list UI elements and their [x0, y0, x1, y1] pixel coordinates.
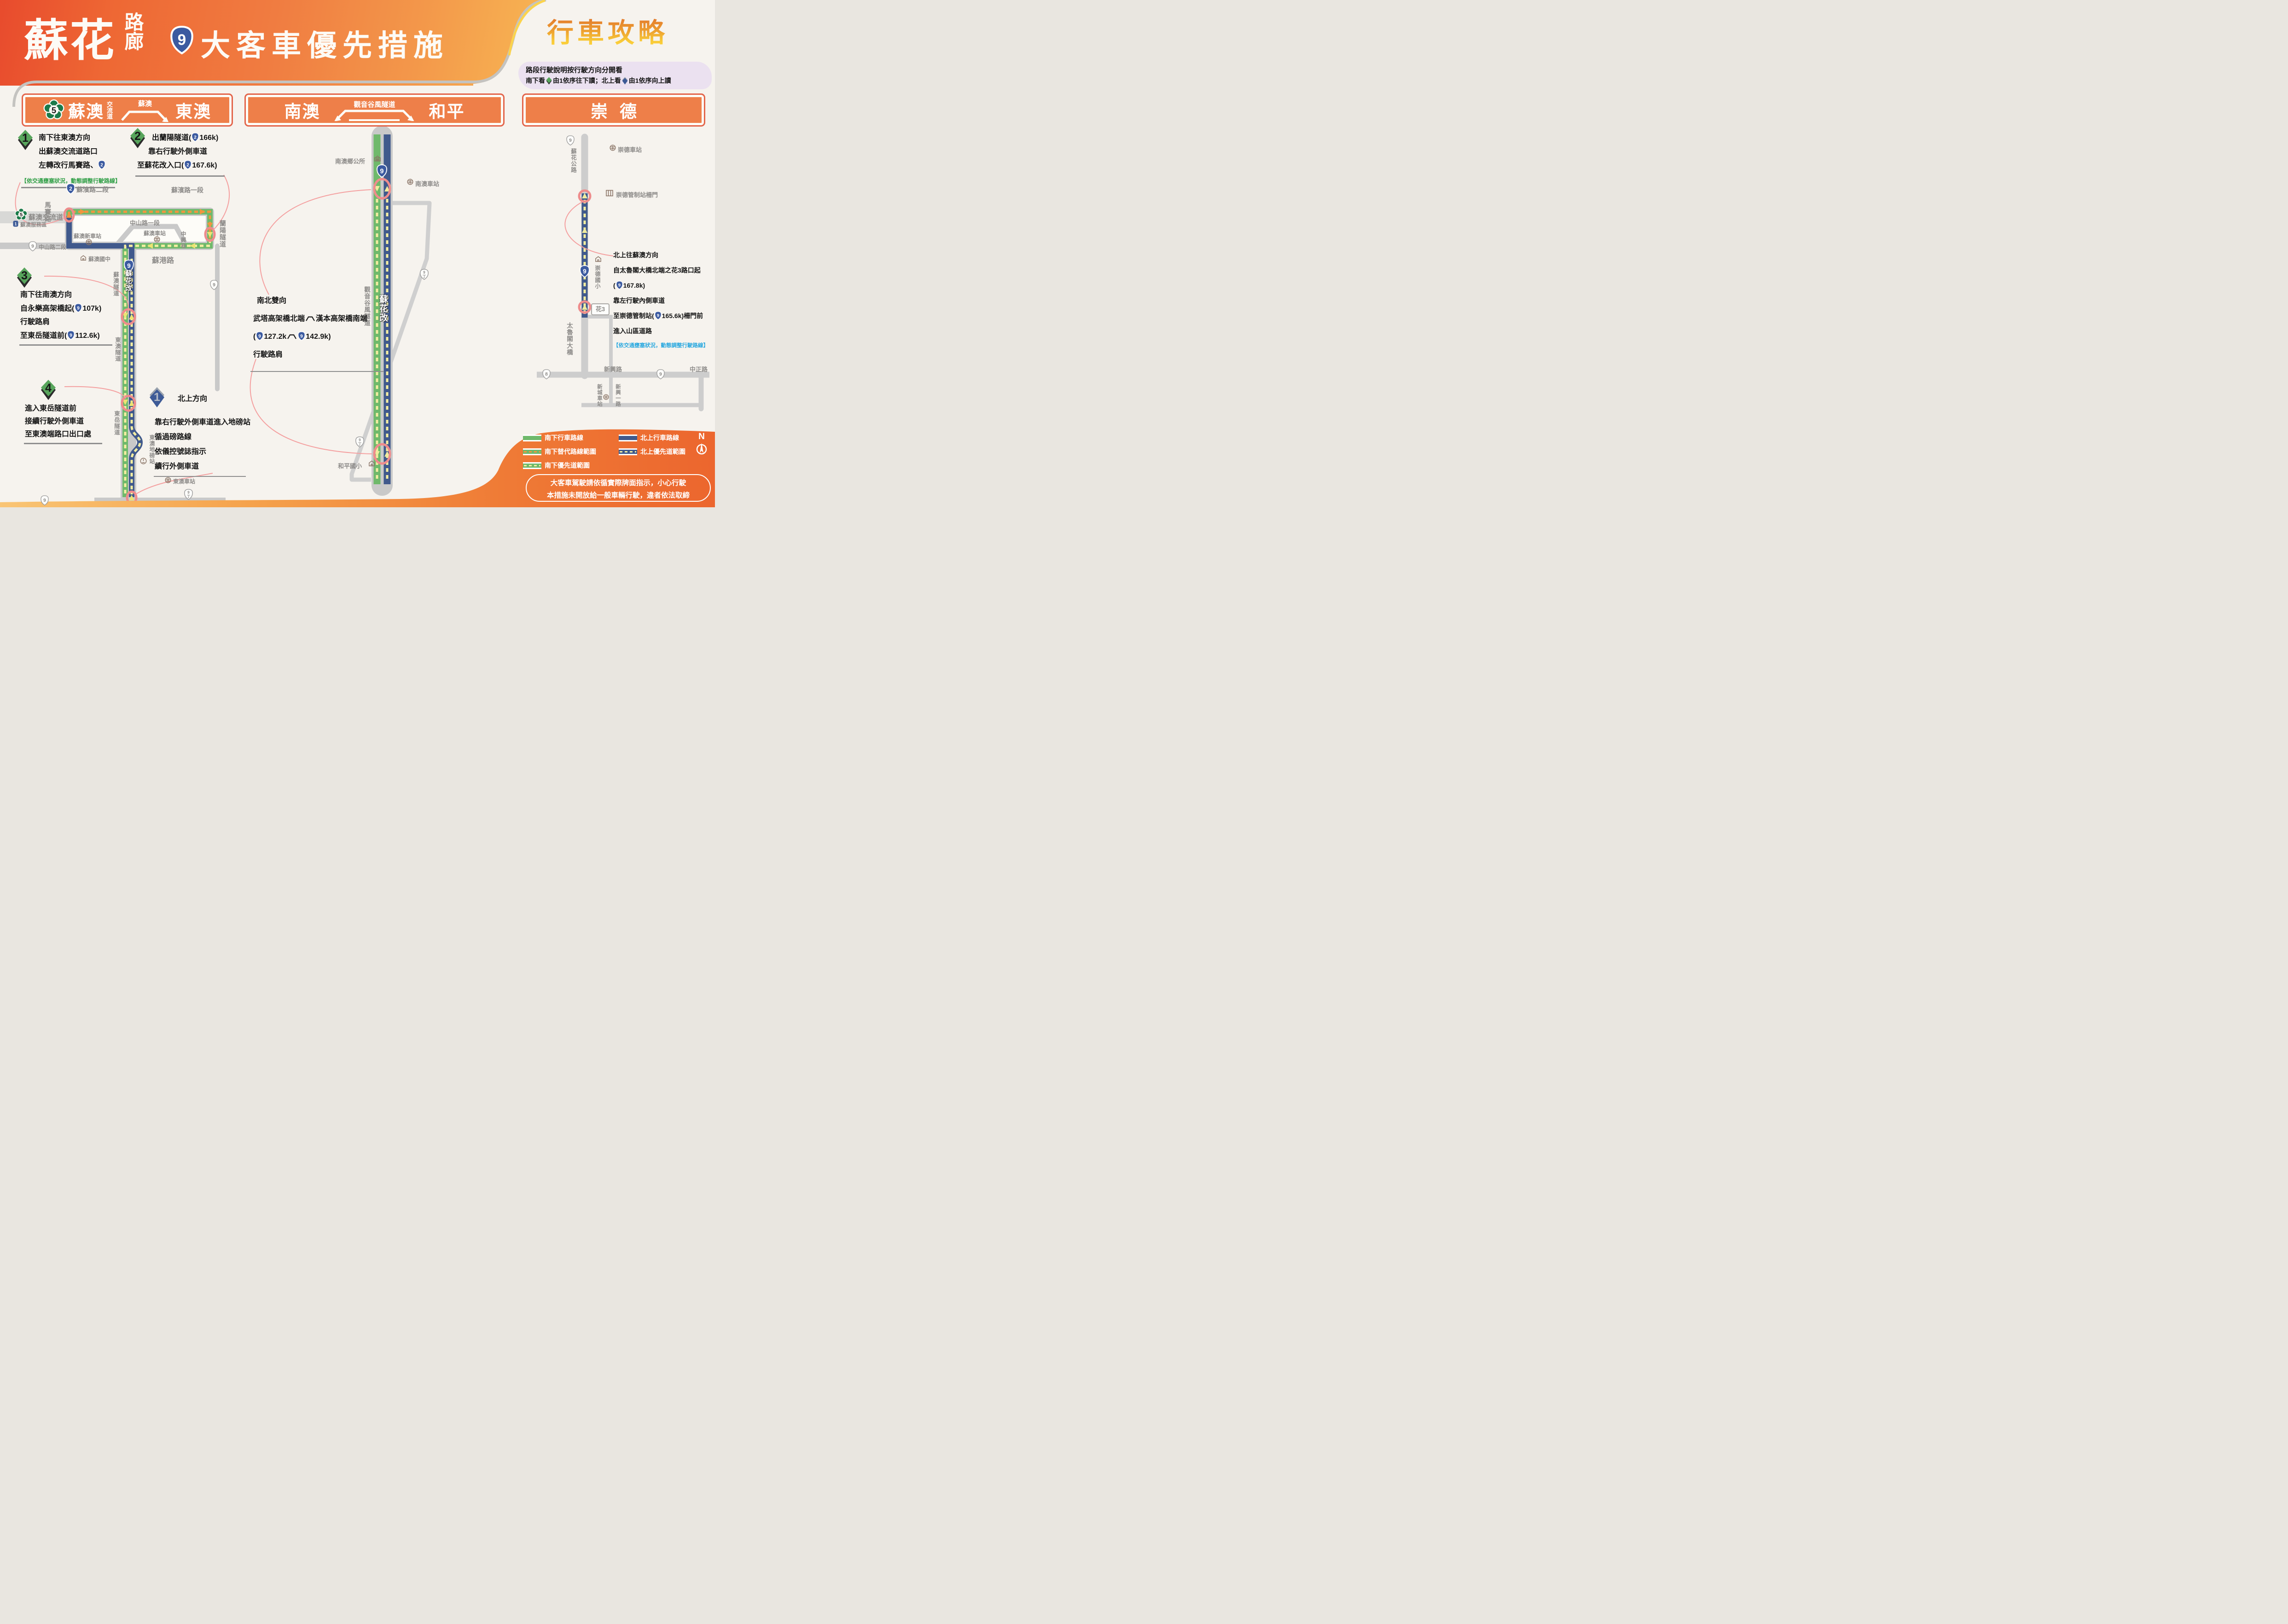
p2-line: 南北雙向 — [257, 292, 367, 310]
tunnel-glyph — [287, 333, 296, 339]
service-label: 蘇澳服務區 — [20, 221, 47, 228]
svg-text:9: 9 — [300, 334, 303, 339]
hua3-label: 花3 — [591, 303, 610, 315]
p3-line: 至崇德管制站(9165.6k)柵門前 — [613, 308, 703, 324]
route-2-shield-icon: 2 — [184, 160, 192, 169]
swatch-south-priority — [523, 462, 541, 469]
plate1-name2: 交流道 — [106, 101, 113, 119]
tunnel-label: 東澳隧道 — [113, 337, 122, 362]
gate-icon — [606, 190, 613, 197]
legend-label: 南下替代路線範圍 — [545, 447, 596, 456]
divider — [250, 371, 384, 372]
gate-label: 崇德管制站柵門 — [616, 190, 658, 199]
tunnel-label: 蘇澳隧道 — [111, 272, 120, 296]
step4-text: 進入東岳隧道前 接續行駛外側車道 至東澳端路口出口處 — [25, 402, 91, 441]
swatch-south-solid — [523, 435, 541, 441]
legend-label: 南下行車路線 — [545, 433, 583, 442]
step1-line: 左轉改行馬賽路、2 — [39, 159, 106, 173]
school-icon — [368, 460, 375, 467]
road-label: 蘭陽隧道 — [218, 220, 227, 248]
plate2-tunnel-block: 觀音谷風隧道 — [333, 99, 416, 121]
weigh-station-label: 東澳地磅站 — [148, 435, 156, 464]
legend-item: 南下行車路線 — [523, 433, 583, 442]
road-label: 中正路 — [690, 365, 708, 373]
divider — [19, 344, 112, 346]
svg-text:9: 9 — [31, 244, 34, 249]
route-9d-shield: 9丁 — [420, 269, 429, 280]
svg-text:9: 9 — [618, 283, 621, 288]
step3-line: 至東岳隧道前(9112.6k) — [20, 329, 101, 343]
svg-text:N: N — [698, 432, 705, 441]
school-label: 蘇澳國中 — [88, 255, 110, 263]
plate1-via-block: 蘇澳 — [117, 99, 173, 122]
route-9-shield-icon: 9 — [256, 331, 263, 341]
step-diamond-s4: 4 — [41, 379, 56, 400]
compass-icon: N — [694, 431, 709, 459]
interchange-label: 蘇澳交流道 — [29, 212, 63, 222]
road-label: 新興一路 — [614, 384, 621, 407]
p3-text: 北上往蘇澳方向 自太魯閣大橋北端之花3路口起 (9167.8k) 靠左行駛內側車… — [613, 248, 703, 339]
plate1-name: 蘇澳 — [68, 98, 104, 122]
p2-line: 武塔高架橋北端漢本高架橋南端 — [253, 310, 367, 328]
p3-line: 北上往蘇澳方向 — [613, 248, 703, 263]
step2-text: 出蘭陽隧道(2166k) 靠右行駛外側車道 至蘇花改入口(2167.6k) — [137, 131, 218, 173]
p2-text: 南北雙向 武塔高架橋北端漢本高架橋南端 (9127.2k9142.9k) 行駛路… — [253, 292, 367, 364]
route-2-shield-icon: 2 — [192, 133, 199, 142]
road-label: 蘇濱路二段 — [76, 185, 109, 194]
stepN1-line: 依儀控號誌指示 — [155, 445, 250, 459]
step1-text: 南下往東澳方向 出蘇澳交流道路口 左轉改行馬賽路、2 — [39, 131, 106, 173]
divider — [24, 443, 102, 444]
route-8-shield-white: 8 — [542, 369, 551, 379]
route-9-shield-icon: 9 — [75, 303, 82, 313]
route-9d-shield: 9丁 — [184, 489, 193, 500]
p2-line: (9127.2k9142.9k) — [253, 328, 367, 346]
plate2-from: 南澳 — [285, 98, 320, 122]
svg-text:9: 9 — [187, 490, 190, 494]
legend-item: 南下優先道範圍 — [523, 461, 590, 470]
school-label: 和平國小 — [338, 461, 362, 470]
p3-note: 【依交通壅塞狀況，動態調整行駛路線】 — [613, 342, 708, 349]
freeway-5-shield: 5 — [15, 208, 28, 221]
route-2-shield-icon: 2 — [98, 160, 105, 169]
panel3-plate: 崇德 — [522, 93, 705, 127]
svg-text:9: 9 — [70, 333, 73, 338]
train-station-icon — [165, 477, 171, 483]
train-station-icon — [603, 394, 609, 400]
station-label: 崇德車站 — [618, 145, 642, 154]
step4-line: 進入東岳隧道前 — [25, 402, 91, 415]
stepN1-line: 續行外側車道 — [155, 459, 250, 474]
legend-label: 北上優先道範圍 — [640, 447, 685, 456]
township-office-icon — [374, 155, 381, 162]
road-label: 蘇港路 — [152, 254, 174, 265]
svg-text:1: 1 — [14, 222, 17, 226]
panel1-plate: 5 蘇澳 交流道 蘇澳 東澳 — [22, 93, 233, 127]
svg-text:9: 9 — [583, 268, 587, 275]
train-station-icon — [154, 236, 160, 243]
step-diamond-n1: 1 — [149, 387, 165, 408]
route-9-shield-white: 9 — [210, 280, 218, 290]
stepN1-line: 靠右行駛外側車道進入地磅站 — [155, 415, 250, 430]
svg-text:9: 9 — [659, 372, 662, 377]
svg-text:9: 9 — [657, 313, 659, 318]
p3-line: 自太魯閣大橋北端之花3路口起 — [613, 263, 703, 278]
svg-text:9: 9 — [213, 283, 215, 288]
route-2-shield: 2 — [66, 183, 75, 194]
road-label: 中山路一段 — [130, 218, 160, 227]
svg-text:9: 9 — [77, 306, 80, 311]
step2-line: 至蘇花改入口(2167.6k) — [137, 159, 218, 173]
legend-label: 北上行車路線 — [640, 433, 679, 442]
plate3-name: 崇德 — [591, 98, 649, 122]
svg-text:5: 5 — [52, 105, 56, 115]
plate2-to: 和平 — [429, 98, 465, 122]
warning-line1: 大客車駕駛請依循實際牌面指示，小心行駛 — [527, 477, 710, 489]
train-station-icon — [86, 239, 92, 245]
warning-box: 大客車駕駛請依循實際牌面指示，小心行駛 本措施未開放給一般車輛行駛，違者依法取締 — [526, 474, 711, 502]
step1-line: 出蘇澳交流道路口 — [39, 145, 106, 159]
divider — [135, 175, 225, 177]
svg-text:丁: 丁 — [358, 442, 361, 446]
road-label: 新興路 — [604, 365, 622, 373]
stepN1-text: 靠右行駛外側車道進入地磅站 循過磅路線 依儀控號誌指示 續行外側車道 — [155, 415, 250, 474]
train-station-icon — [610, 145, 616, 151]
svg-text:1: 1 — [154, 391, 160, 404]
hall-label: 南澳鄉公所 — [335, 157, 365, 165]
svg-text:8: 8 — [545, 372, 548, 377]
svg-text:丁: 丁 — [187, 495, 190, 499]
p3-line: (9167.8k) — [613, 278, 703, 293]
freeway-5-shield: 5 — [43, 99, 64, 121]
route-9-shield-icon: 9 — [616, 281, 623, 290]
weigh-station-icon — [140, 458, 147, 464]
route-9-shield-icon: 9 — [298, 331, 305, 341]
station-label: 南澳車站 — [415, 179, 439, 188]
plate1-via: 蘇澳 — [138, 99, 152, 108]
step3-line: 行駛路肩 — [20, 315, 101, 329]
step3-line: 自永樂高架橋起(9107k) — [20, 302, 101, 316]
train-station-icon — [407, 179, 413, 185]
svg-text:9: 9 — [569, 138, 572, 143]
step2-line: 靠右行駛外側車道 — [148, 145, 218, 159]
stepN1-title: 北上方向 — [178, 392, 207, 406]
route-9-shield-white: 9 — [656, 369, 665, 379]
step4-line: 至東澳端路口出口處 — [25, 428, 91, 441]
svg-text:9: 9 — [43, 498, 46, 503]
footer-blob — [0, 0, 715, 507]
svg-text:9: 9 — [259, 334, 261, 339]
step3-text: 南下往南澳方向 自永樂高架橋起(9107k) 行駛路肩 至東岳隧道前(9112.… — [20, 288, 101, 342]
legend-item: 南下替代路線範圍 — [523, 447, 596, 456]
bridge-label: 太魯閣大橋 — [564, 322, 574, 356]
svg-text:2: 2 — [187, 162, 190, 168]
legend-label: 南下優先道範圍 — [545, 461, 590, 470]
tunnel-glyph — [306, 315, 315, 321]
school-label: 崇德國小 — [594, 265, 601, 289]
svg-text:2: 2 — [194, 135, 197, 140]
station-label: 新城車站 — [596, 384, 603, 407]
swatch-north-priority — [619, 448, 637, 455]
step-diamond-s1: 1 — [17, 129, 33, 151]
route-9-shield-white: 9 — [29, 241, 37, 251]
swatch-north-solid — [619, 435, 637, 441]
route-9-shield-white: 9 — [41, 495, 49, 505]
svg-text:丁: 丁 — [423, 275, 426, 278]
route-9-shield-icon: 9 — [655, 311, 662, 320]
panel2-plate: 南澳 觀音谷風隧道 和平 — [244, 93, 505, 127]
route-9-shield: 9 — [580, 265, 590, 278]
road-label: 中興巷 — [180, 231, 187, 249]
route-9-shield-icon: 9 — [67, 331, 75, 340]
legend-item: 北上優先道範圍 — [619, 447, 685, 456]
school-icon — [595, 256, 602, 262]
tunnel-arrows — [333, 109, 416, 121]
svg-text:9: 9 — [359, 438, 361, 442]
warning-line2: 本措施未開放給一般車輛行駛，違者依法取締 — [527, 489, 710, 502]
p2-line: 行駛路肩 — [253, 346, 367, 364]
p3-line: 靠左行駛內側車道 — [613, 293, 703, 308]
route-arrow — [117, 108, 173, 122]
svg-text:2: 2 — [69, 186, 72, 192]
p3-line: 進入山區道路 — [613, 324, 703, 339]
step4-line: 接續行駛外側車道 — [25, 415, 91, 428]
tunnel-label: 東岳隧道 — [112, 411, 121, 435]
step3-line: 南下往南澳方向 — [20, 288, 101, 302]
plate1-to: 東澳 — [175, 98, 211, 122]
suhuagai-label: 蘇花改 — [123, 270, 133, 292]
svg-text:9: 9 — [380, 168, 384, 175]
step2-line: 出蘭陽隧道(2166k) — [152, 131, 218, 145]
svg-text:5: 5 — [20, 212, 23, 218]
road-label: 蘇濱路一段 — [171, 186, 203, 195]
legend-item: 北上行車路線 — [619, 433, 679, 442]
school-icon — [80, 255, 87, 261]
service-area-icon: 1 — [13, 220, 18, 227]
svg-text:1: 1 — [22, 132, 29, 145]
road-label: 蘇花公路 — [569, 148, 578, 173]
plate2-tunnel: 觀音谷風隧道 — [354, 99, 395, 109]
route-9-shield: 9 — [377, 164, 387, 178]
svg-text:9: 9 — [423, 270, 425, 274]
poster: 蘇花 路廊 9 大客車優先措施 行車攻略 路段行駛說明按行駛方向分開看 南下看 … — [0, 0, 715, 507]
swatch-south-alt — [523, 448, 541, 455]
route-9-shield-white: 9 — [566, 135, 575, 145]
step1-line: 南下往東澳方向 — [39, 131, 106, 145]
step-diamond-s3: 3 — [17, 267, 32, 288]
svg-text:9: 9 — [127, 262, 131, 269]
road-label: 中山路二段 — [39, 243, 66, 251]
station-label: 東澳車站 — [173, 477, 195, 485]
svg-text:4: 4 — [45, 382, 52, 394]
stepN1-line: 循過磅路線 — [155, 430, 250, 445]
svg-text:3: 3 — [21, 269, 28, 282]
svg-text:2: 2 — [100, 162, 103, 168]
suhuagai-label: 蘇花改 — [377, 295, 389, 322]
route-9d-shield: 9丁 — [355, 436, 364, 447]
